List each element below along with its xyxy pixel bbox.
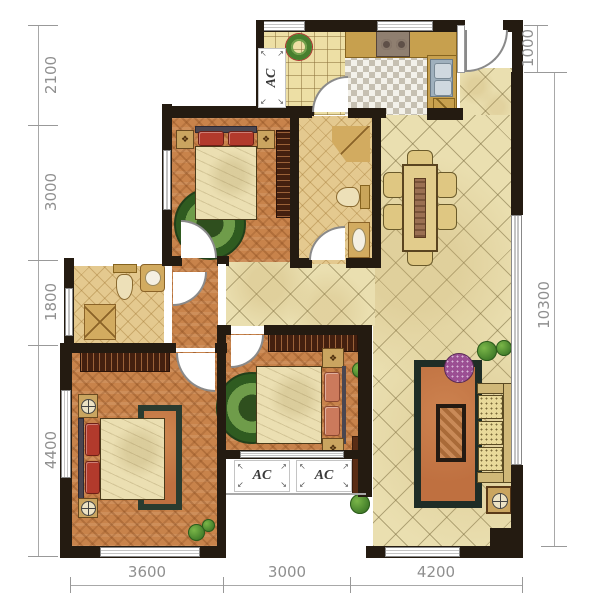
ac-platform-edge (226, 493, 366, 495)
dim-tick (28, 345, 58, 346)
ac-unit-1: AC ↖ ↗ ↙ ↘ (234, 460, 290, 492)
wall-bathroom1-left (290, 116, 299, 264)
lamp-icon (492, 493, 508, 509)
balcony-window (260, 21, 305, 31)
lamp-icon (81, 501, 96, 516)
bed-headboard (342, 366, 346, 444)
dim-tick (541, 72, 567, 73)
master-nightstand (78, 394, 98, 418)
master-wardrobe (80, 352, 170, 372)
wreath-plant-icon (286, 34, 312, 60)
ac-unit-balcony: AC ↖ ↗ ↙ ↘ (258, 48, 286, 108)
armchair-round (444, 353, 474, 383)
wall-kitchen-bottom-right (427, 108, 463, 120)
lamp-icon (81, 399, 96, 414)
wall-bathroom1-right (372, 108, 381, 266)
sink-basin-icon (434, 63, 452, 79)
wall-master-top-l (60, 343, 176, 353)
expand-arrow-icon: ↖ (260, 50, 267, 58)
dim-label-left-3000: 3000 (42, 173, 60, 211)
ornament-icon: ❖ (181, 135, 189, 144)
dim-tick (28, 260, 58, 261)
wall-bedroom2-top-r (264, 325, 368, 335)
bathroom1-sink (348, 222, 370, 258)
sink-basin-icon (434, 80, 452, 96)
ac-label: AC (264, 69, 280, 88)
sofa (477, 383, 513, 483)
expand-arrow-icon: ↙ (237, 481, 244, 489)
sink-basin-icon (352, 228, 366, 252)
dim-label-right-1000: 1000 (519, 29, 537, 67)
dim-label-left-1800: 1800 (42, 283, 60, 321)
ornament-icon: ❖ (329, 354, 337, 363)
bed-headboard (78, 418, 84, 500)
bedroom2-window (240, 451, 344, 458)
bedroom2-wardrobe (268, 334, 358, 352)
bed-pillow (198, 131, 224, 146)
expand-arrow-icon: ↘ (277, 98, 284, 106)
dim-tick (524, 25, 548, 26)
side-table (486, 486, 512, 514)
wall-bedroom1-bottom-l (162, 256, 182, 266)
expand-arrow-icon: ↘ (342, 481, 349, 489)
wall-bedroom2-right (358, 325, 372, 497)
sofa-cushion (478, 447, 503, 471)
dim-label-right-10300: 10300 (535, 281, 553, 329)
corridor-floor (220, 262, 375, 326)
expand-arrow-icon: ↘ (280, 481, 287, 489)
wall-master-right (217, 334, 226, 548)
dim-tick (541, 546, 567, 547)
sofa-armrest (477, 383, 504, 394)
stove-icon (376, 31, 410, 57)
dining-chair (437, 172, 457, 198)
stove-burner-icon (381, 39, 392, 50)
expand-arrow-icon: ↙ (260, 98, 267, 106)
dim-label-left-2100: 2100 (42, 56, 60, 94)
expand-arrow-icon: ↗ (342, 463, 349, 471)
bed-pillow (324, 406, 340, 436)
sofa-cushion (478, 395, 503, 419)
entry-door-swing (466, 30, 508, 72)
dim-tick (28, 125, 58, 126)
expand-arrow-icon: ↗ (280, 463, 287, 471)
master-plant-icon (202, 519, 215, 532)
dim-label-bottom-4200: 4200 (417, 563, 455, 581)
wall-bathroom1-bottom-r (346, 258, 381, 268)
ac-label: AC (315, 468, 334, 484)
dim-label-bottom-3000: 3000 (268, 563, 306, 581)
expand-arrow-icon: ↙ (299, 481, 306, 489)
table-runner (414, 178, 426, 238)
bed-blanket (256, 366, 322, 444)
bathroom2-sink (140, 264, 165, 292)
living-plant-icon (496, 340, 512, 356)
dim-tick (350, 577, 351, 593)
sink-basin-icon (145, 270, 161, 286)
bedroom1-nightstand: ❖ (176, 130, 194, 149)
bathroom1-toilet-icon (336, 184, 370, 210)
dining-chair (437, 204, 457, 230)
wall-right-mid (511, 72, 523, 215)
bedroom1-wardrobe (276, 130, 291, 218)
expand-arrow-icon: ↖ (237, 463, 244, 471)
living-plant-icon (350, 494, 370, 514)
living-window-right (511, 215, 522, 465)
bed-pillow (228, 131, 254, 146)
kitchen-window (377, 21, 433, 31)
ornament-icon: ❖ (262, 135, 270, 144)
bed-blanket (100, 418, 165, 500)
wall-kitchen-entry (457, 25, 465, 73)
dim-tick (70, 577, 71, 593)
wall-corridor-divider (218, 264, 226, 326)
entry-door-leaf (465, 30, 467, 72)
dim-tick (522, 577, 523, 593)
dim-tick (223, 577, 224, 593)
bed-blanket (195, 146, 257, 220)
master-window-bottom (100, 547, 200, 557)
dim-line-right-main (554, 72, 555, 546)
dim-line-left (38, 25, 39, 556)
master-window-left (61, 390, 71, 478)
ac-unit-2: AC ↖ ↗ ↙ ↘ (296, 460, 352, 492)
bathroom2-shower (84, 304, 116, 340)
dim-tick (28, 25, 58, 26)
bathroom2-window (65, 288, 73, 336)
living-window-bottom (385, 547, 460, 557)
floor-plan: ❖ ❖ ❖ ❖ (0, 0, 600, 600)
bathroom2-toilet-icon (112, 264, 138, 302)
stove-burner-icon (396, 39, 407, 50)
toilet-bowl (116, 274, 133, 300)
dim-line-bottom (70, 585, 522, 586)
entry-floor (460, 68, 513, 120)
sofa-cushion (478, 421, 503, 445)
master-bed (78, 418, 165, 500)
expand-arrow-icon: ↗ (277, 50, 284, 58)
bed-pillow (85, 423, 100, 456)
dim-line-right-upper (537, 25, 538, 72)
bedroom1-bed (195, 126, 257, 220)
dining-chair (383, 204, 403, 230)
toilet-tank (113, 264, 137, 273)
expand-arrow-icon: ↖ (299, 463, 306, 471)
dining-table (402, 164, 438, 252)
toilet-bowl (336, 187, 360, 207)
bedroom1-nightstand: ❖ (257, 130, 275, 149)
bedroom2-bed (256, 366, 346, 444)
dim-label-bottom-3600: 3600 (128, 563, 166, 581)
coffee-table (436, 404, 466, 462)
dim-tick (28, 556, 58, 557)
dim-label-left-4400: 4400 (42, 431, 60, 469)
bed-pillow (324, 372, 340, 402)
bedroom1-window (163, 150, 171, 210)
bedroom2-nightstand: ❖ (322, 348, 344, 368)
kitchen-sink-icon (430, 59, 453, 97)
sofa-armrest (477, 472, 504, 483)
dining-chair (383, 172, 403, 198)
ac-label: AC (253, 468, 272, 484)
bed-pillow (85, 461, 100, 494)
living-plant-icon (477, 341, 497, 361)
toilet-tank (360, 185, 370, 209)
master-nightstand (78, 498, 98, 518)
